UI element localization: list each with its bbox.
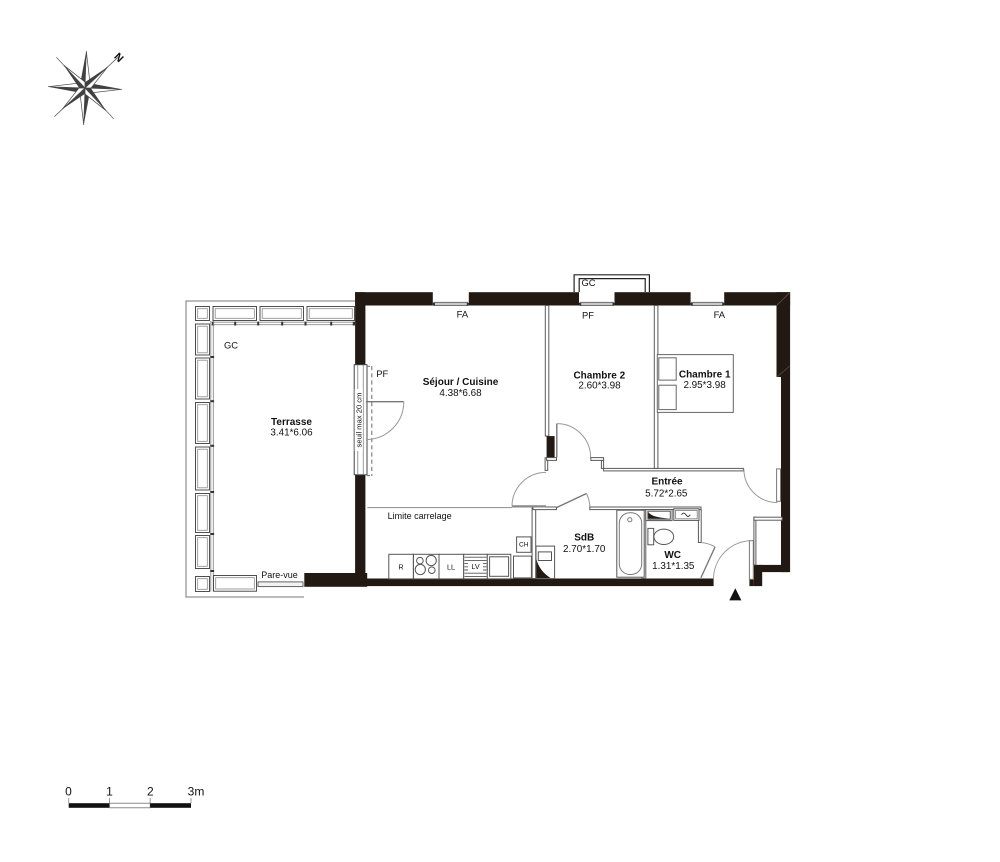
- svg-text:2.70*1.70: 2.70*1.70: [563, 544, 606, 555]
- svg-text:Terrasse: Terrasse: [271, 417, 312, 428]
- svg-text:LV: LV: [471, 562, 479, 571]
- svg-text:GC: GC: [224, 340, 238, 351]
- svg-text:R: R: [398, 562, 403, 571]
- svg-text:1: 1: [106, 785, 113, 799]
- svg-text:LL: LL: [447, 562, 455, 571]
- svg-text:GC: GC: [581, 277, 595, 288]
- svg-text:SdB: SdB: [574, 532, 594, 543]
- svg-text:Chambre 1: Chambre 1: [679, 369, 731, 380]
- svg-text:3m: 3m: [188, 785, 205, 799]
- svg-text:Entrée: Entrée: [651, 477, 683, 488]
- svg-text:2.95*3.98: 2.95*3.98: [683, 380, 726, 391]
- svg-text:FA: FA: [714, 309, 726, 320]
- svg-text:0: 0: [65, 785, 72, 799]
- svg-text:PF: PF: [582, 309, 594, 320]
- svg-text:Pare-vue: Pare-vue: [261, 570, 298, 580]
- svg-text:3.41*6.06: 3.41*6.06: [270, 428, 313, 439]
- svg-text:Limite carrelage: Limite carrelage: [388, 511, 452, 521]
- svg-text:WC: WC: [664, 550, 681, 561]
- svg-text:5.72*2.65: 5.72*2.65: [645, 489, 688, 500]
- svg-text:seuil max 20 cm: seuil max 20 cm: [354, 393, 363, 448]
- svg-text:FA: FA: [457, 309, 469, 320]
- svg-text:1.31*1.35: 1.31*1.35: [652, 561, 695, 572]
- svg-text:Séjour / Cuisine: Séjour / Cuisine: [423, 377, 499, 388]
- svg-text:2.60*3.98: 2.60*3.98: [578, 380, 621, 391]
- svg-text:4.38*6.68: 4.38*6.68: [439, 388, 482, 399]
- svg-text:2: 2: [147, 785, 154, 799]
- svg-text:CH: CH: [519, 541, 529, 548]
- svg-text:PF: PF: [376, 368, 388, 379]
